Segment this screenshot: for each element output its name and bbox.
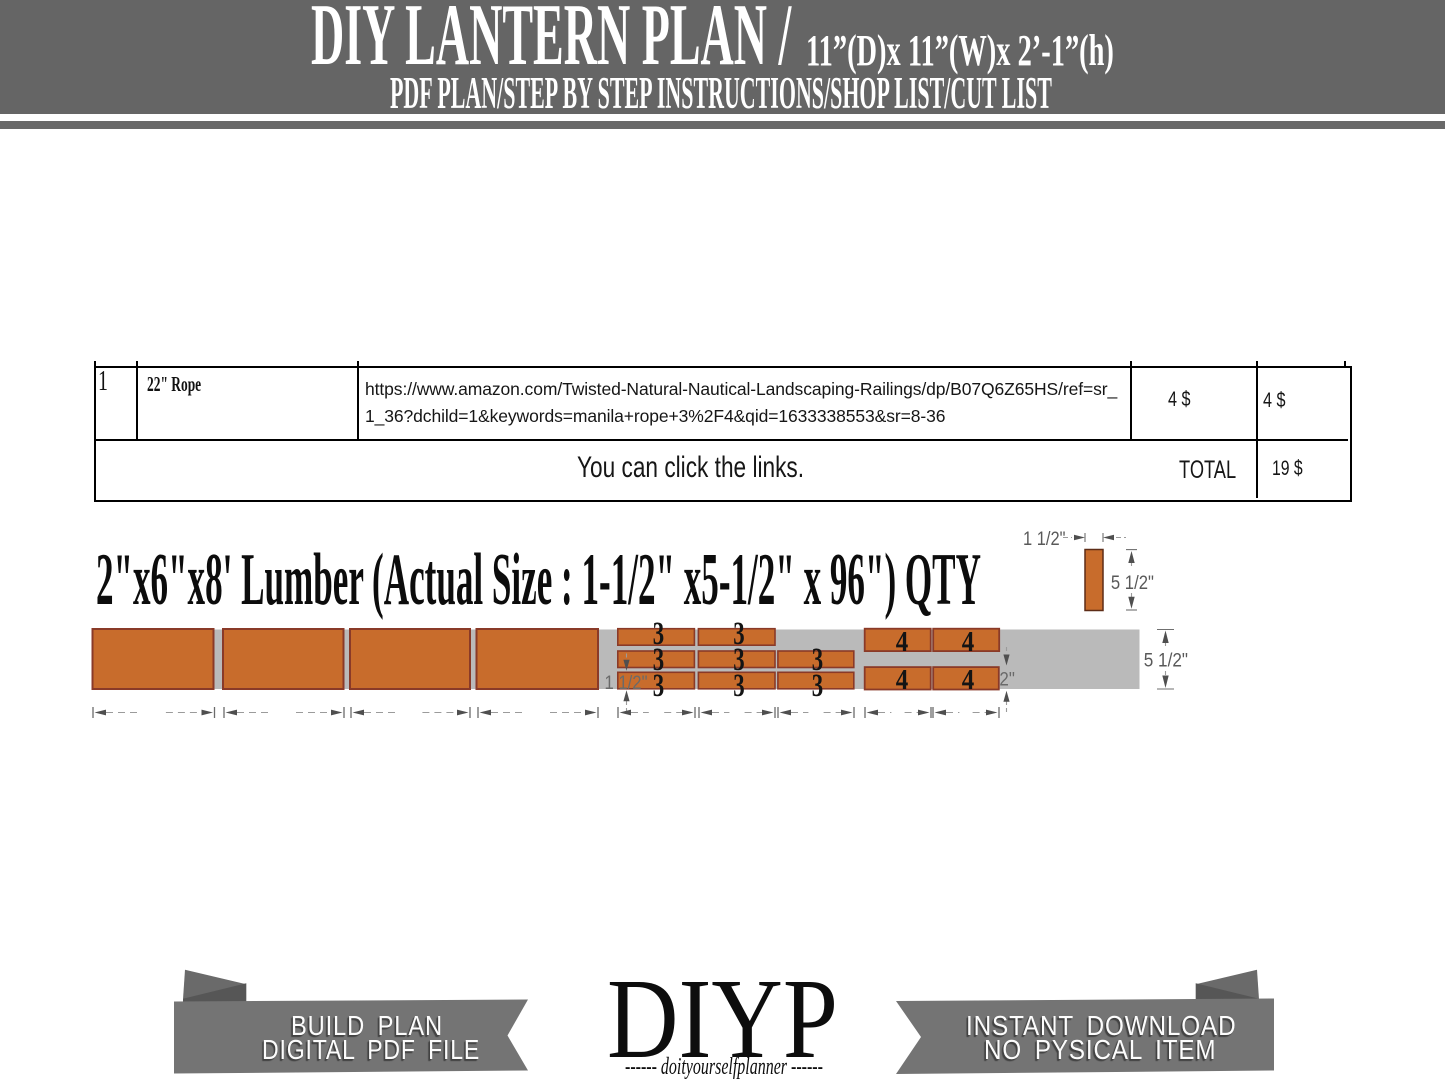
svg-text:1 1/2": 1 1/2": [1023, 528, 1066, 550]
svg-text:3: 3: [733, 668, 744, 704]
svg-text:5 1/2": 5 1/2": [1144, 650, 1188, 672]
svg-text:3: 3: [812, 668, 823, 704]
svg-text:5 1/2": 5 1/2": [1111, 572, 1154, 594]
svg-text:1 1/2": 1 1/2": [605, 672, 648, 694]
svg-text:4: 4: [896, 665, 909, 696]
svg-text:4: 4: [896, 627, 909, 658]
svg-text:3: 3: [653, 668, 664, 704]
svg-text:2": 2": [999, 668, 1015, 690]
svg-text:4: 4: [962, 665, 975, 696]
svg-text:4: 4: [962, 627, 975, 658]
